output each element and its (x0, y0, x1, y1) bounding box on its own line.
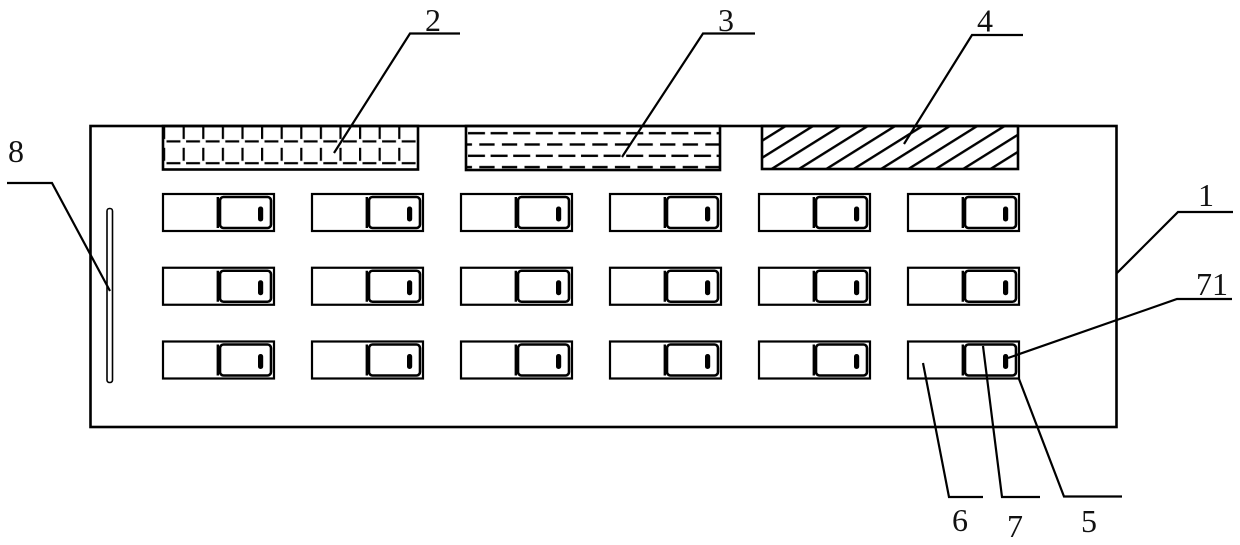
ref-label-71: 71 (1196, 266, 1228, 302)
figure-canvas: 2 3 4 1 71 8 6 7 5 (0, 0, 1240, 545)
hatched-region (762, 126, 1018, 169)
slide-switch (312, 194, 423, 231)
slide-switch (908, 268, 1019, 305)
slide-switch (759, 342, 870, 379)
ref-label-6: 6 (952, 502, 968, 538)
leader-line-1 (1117, 212, 1233, 273)
slide-switch (461, 194, 572, 231)
slide-switch (312, 268, 423, 305)
slide-switch (163, 194, 274, 231)
ref-label-4: 4 (977, 3, 993, 39)
slide-switch (759, 268, 870, 305)
ref-label-3: 3 (718, 2, 734, 38)
drawing-stage: 2 3 4 1 71 8 6 7 5 (0, 0, 1240, 545)
ref-label-1: 1 (1198, 177, 1214, 213)
ref-label-8: 8 (8, 133, 24, 169)
slide-switch (759, 194, 870, 231)
slide-switch (908, 194, 1019, 231)
slide-switch (312, 342, 423, 379)
ref-label-5: 5 (1081, 503, 1097, 539)
dashed-region (466, 126, 720, 170)
slide-switch (163, 268, 274, 305)
slide-switch (461, 342, 572, 379)
slide-switch (610, 194, 721, 231)
slide-switch (461, 268, 572, 305)
brick-region (163, 126, 418, 170)
slide-switch (163, 342, 274, 379)
ref-label-2: 2 (425, 2, 441, 38)
ref-label-7: 7 (1007, 508, 1023, 544)
side-strip (107, 209, 113, 383)
slide-switch (610, 342, 721, 379)
slide-switch (610, 268, 721, 305)
